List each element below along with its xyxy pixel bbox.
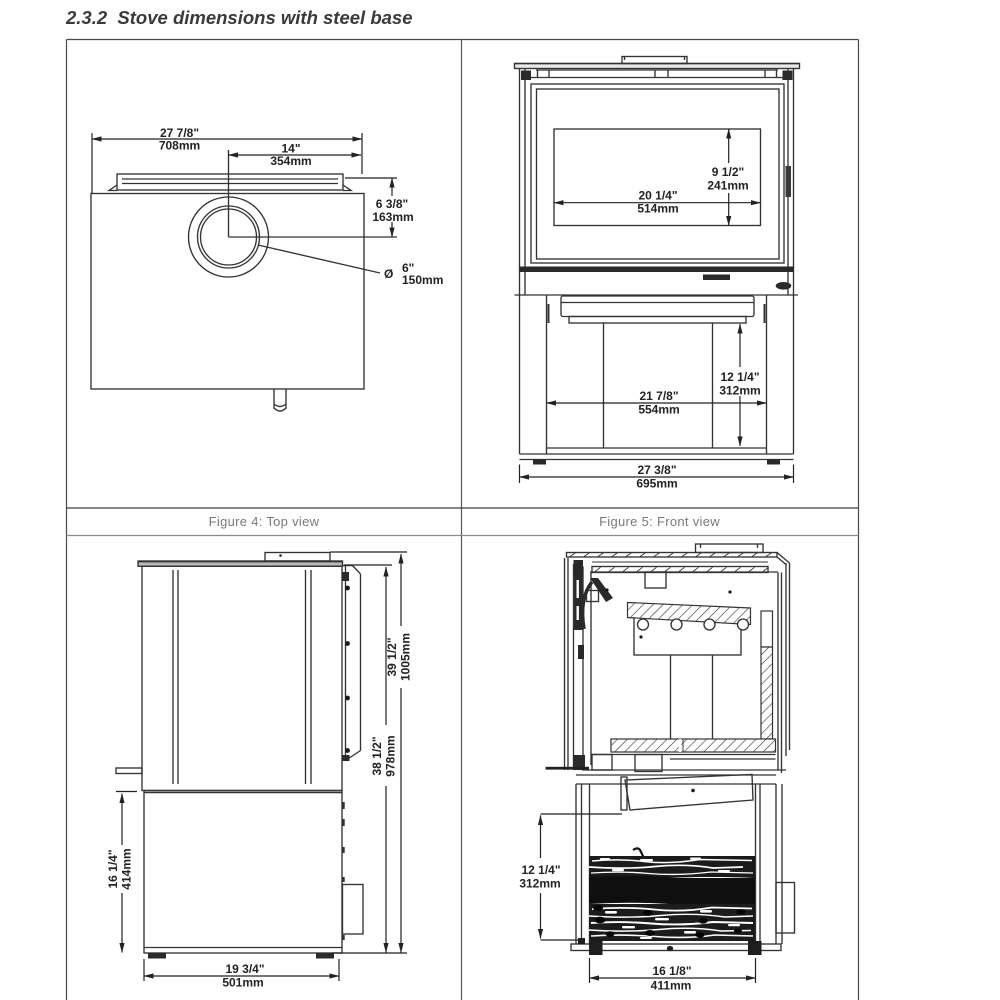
svg-text:978mm: 978mm [384, 735, 398, 776]
svg-text:16 1/4": 16 1/4" [106, 849, 120, 888]
svg-text:38 1/2": 38 1/2" [370, 736, 384, 775]
svg-text:411mm: 411mm [651, 979, 692, 993]
svg-text:554mm: 554mm [638, 403, 679, 417]
svg-text:514mm: 514mm [637, 202, 678, 216]
svg-text:Figure 4: Top view: Figure 4: Top view [209, 514, 320, 529]
svg-text:27 3/8": 27 3/8" [637, 463, 676, 477]
svg-text:150mm: 150mm [402, 273, 443, 287]
svg-text:21 7/8": 21 7/8" [639, 389, 678, 403]
svg-text:16 1/8": 16 1/8" [652, 964, 691, 978]
svg-text:Figure 5: Front view: Figure 5: Front view [599, 514, 720, 529]
svg-text:Ø: Ø [384, 267, 393, 281]
svg-text:354mm: 354mm [270, 154, 311, 168]
svg-text:2.3.2 Stove dimensions with s: 2.3.2 Stove dimensions with steel base [65, 7, 413, 28]
svg-text:708mm: 708mm [159, 139, 200, 153]
svg-text:6 3/8": 6 3/8" [376, 197, 408, 211]
svg-text:163mm: 163mm [372, 210, 413, 224]
svg-text:20 1/4": 20 1/4" [638, 189, 677, 203]
svg-text:1005mm: 1005mm [399, 633, 413, 681]
svg-text:414mm: 414mm [120, 848, 134, 889]
svg-text:312mm: 312mm [519, 877, 560, 891]
svg-text:19 3/4": 19 3/4" [225, 962, 264, 976]
svg-text:695mm: 695mm [636, 477, 677, 491]
svg-text:9 1/2": 9 1/2" [712, 165, 744, 179]
svg-text:12 1/4": 12 1/4" [720, 370, 759, 384]
svg-text:12 1/4": 12 1/4" [521, 863, 560, 877]
svg-text:501mm: 501mm [222, 976, 263, 990]
svg-text:241mm: 241mm [707, 179, 748, 193]
svg-text:39 1/2": 39 1/2" [385, 637, 399, 676]
svg-text:312mm: 312mm [719, 384, 760, 398]
